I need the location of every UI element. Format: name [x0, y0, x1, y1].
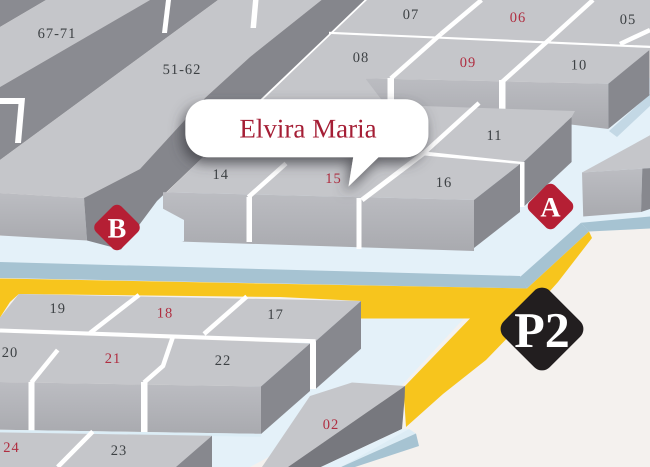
svg-text:05: 05: [620, 12, 637, 28]
svg-text:15: 15: [325, 171, 342, 187]
svg-text:06: 06: [510, 10, 527, 26]
svg-text:P2: P2: [514, 302, 570, 358]
svg-text:20: 20: [2, 345, 19, 361]
svg-text:Elvira Maria: Elvira Maria: [239, 114, 376, 144]
svg-text:A: A: [540, 193, 561, 224]
svg-text:23: 23: [111, 443, 128, 459]
svg-text:51-62: 51-62: [163, 62, 202, 78]
svg-text:09: 09: [460, 55, 477, 71]
svg-text:17: 17: [267, 307, 284, 323]
svg-text:24: 24: [3, 440, 20, 456]
svg-text:22: 22: [215, 353, 232, 369]
svg-text:07: 07: [403, 7, 420, 23]
svg-text:18: 18: [157, 306, 174, 322]
svg-text:10: 10: [571, 58, 588, 74]
svg-text:14: 14: [212, 167, 229, 183]
svg-text:11: 11: [487, 128, 503, 144]
svg-text:08: 08: [353, 50, 370, 66]
svg-text:16: 16: [436, 175, 453, 191]
svg-text:21: 21: [105, 351, 122, 367]
svg-text:19: 19: [49, 301, 66, 317]
svg-text:02: 02: [323, 417, 340, 433]
svg-text:67-71: 67-71: [38, 26, 77, 42]
svg-text:B: B: [108, 214, 127, 245]
